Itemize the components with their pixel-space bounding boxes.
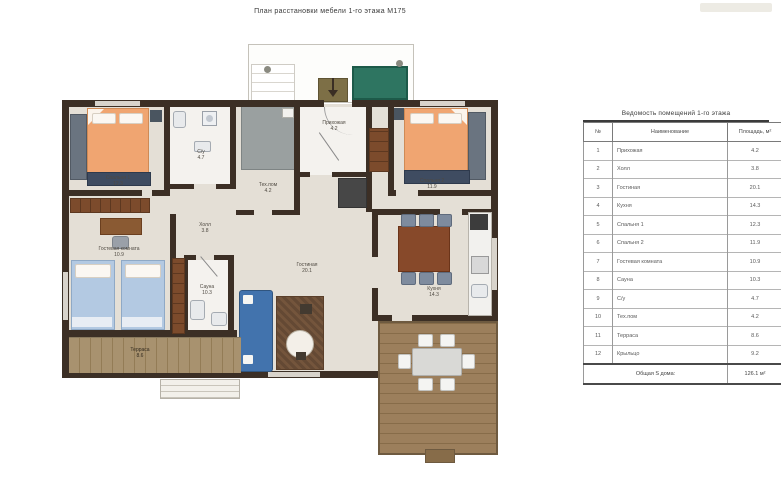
wardrobe-icon bbox=[172, 258, 185, 334]
area-table: № Наименование Площадь, м² 1Прихожая4.22… bbox=[583, 122, 781, 385]
table-row: 5Спальня 112.3 bbox=[584, 216, 781, 235]
total-label: Общая S дома: bbox=[584, 364, 728, 384]
washing-machine-icon bbox=[202, 111, 217, 126]
shelf-icon bbox=[282, 108, 294, 118]
room-label-bedroom2: Спальня 211.9 bbox=[420, 178, 444, 191]
floor-plan-sheet: План расстановки мебели 1-го этажа М175 bbox=[0, 0, 781, 502]
room-label-living: Гостиная20.1 bbox=[297, 262, 318, 275]
table-row: 1Прихожая4.2 bbox=[584, 142, 781, 161]
plant-pot-icon bbox=[264, 66, 271, 73]
nightstand-icon bbox=[394, 108, 404, 120]
area-table-body: 1Прихожая4.22Холл3.83Гостиная20.14Кухня1… bbox=[584, 142, 781, 365]
room-label-bedroom1: Спальня 112.3 bbox=[106, 175, 130, 188]
room-label-tech: Тех.пом4.2 bbox=[259, 182, 277, 195]
decor-icon bbox=[300, 304, 312, 314]
room-label-guest: Гостевая комната10.9 bbox=[98, 246, 139, 259]
toilet-icon bbox=[190, 300, 205, 320]
table-row: 3Гостиная20.1 bbox=[584, 179, 781, 198]
entry-arrow-icon bbox=[332, 78, 334, 90]
closet-icon bbox=[70, 114, 87, 180]
entry-arrow-icon bbox=[328, 90, 338, 97]
plant-pot-icon bbox=[396, 60, 403, 67]
sink-icon bbox=[471, 284, 488, 298]
terrace-deck bbox=[69, 337, 241, 373]
table-row: 6Спальня 211.9 bbox=[584, 234, 781, 253]
table-row: 10Тех.пом4.2 bbox=[584, 308, 781, 327]
area-table-panel: Ведомость помещений 1-го этажа № Наимено… bbox=[583, 108, 769, 385]
closet-icon bbox=[468, 112, 486, 180]
stove-icon bbox=[471, 256, 489, 274]
table-row: 7Гостевая комната10.9 bbox=[584, 253, 781, 272]
wardrobe-icon bbox=[369, 128, 389, 172]
col-header-name: Наименование bbox=[613, 123, 728, 142]
col-header-area: Площадь, м² bbox=[728, 123, 781, 142]
room-label-sauna: Сауна10.3 bbox=[200, 284, 214, 297]
nightstand-icon bbox=[150, 110, 162, 122]
wardrobe-icon bbox=[70, 198, 150, 213]
table-row: 4Кухня14.3 bbox=[584, 197, 781, 216]
porch-steps bbox=[251, 64, 295, 102]
total-value: 126.1 м² bbox=[728, 364, 781, 384]
veranda-step bbox=[425, 449, 455, 463]
table-row: 12Крыльцо9.2 bbox=[584, 345, 781, 364]
desk-icon bbox=[100, 218, 142, 235]
single-bed-icon bbox=[71, 260, 115, 330]
terrace-steps bbox=[160, 379, 240, 399]
bed-icon bbox=[404, 108, 468, 172]
dining-table-icon bbox=[398, 226, 450, 272]
table-row: 11Терраса8.6 bbox=[584, 327, 781, 346]
room-label-hall: Холл3.8 bbox=[199, 222, 211, 235]
single-bed-icon bbox=[121, 260, 165, 330]
table-row: 9С/у4.7 bbox=[584, 290, 781, 309]
table-row: 8Сауна10.3 bbox=[584, 271, 781, 290]
closet-icon bbox=[338, 178, 367, 208]
room-label-bath1: С/у4.7 bbox=[197, 149, 205, 162]
area-table-title: Ведомость помещений 1-го этажа bbox=[583, 108, 769, 122]
sofa-icon bbox=[239, 290, 273, 372]
col-header-num: № bbox=[584, 123, 613, 142]
room-label-terrace: Терраса8.6 bbox=[130, 347, 149, 360]
veranda-deck bbox=[378, 321, 498, 455]
total-row: Общая S дома: 126.1 м² bbox=[584, 364, 781, 384]
room-label-kitchen: Кухня14.3 bbox=[427, 286, 440, 299]
decor-icon bbox=[296, 352, 306, 360]
fridge-icon bbox=[470, 214, 488, 230]
toilet-icon bbox=[173, 111, 186, 128]
sink-icon bbox=[211, 312, 227, 326]
bed-icon bbox=[87, 108, 149, 174]
outdoor-table-icon bbox=[412, 348, 462, 376]
planter-icon bbox=[352, 66, 408, 100]
room-label-entry: Прихожая4.2 bbox=[322, 120, 345, 133]
table-row: 2Холл3.8 bbox=[584, 160, 781, 179]
